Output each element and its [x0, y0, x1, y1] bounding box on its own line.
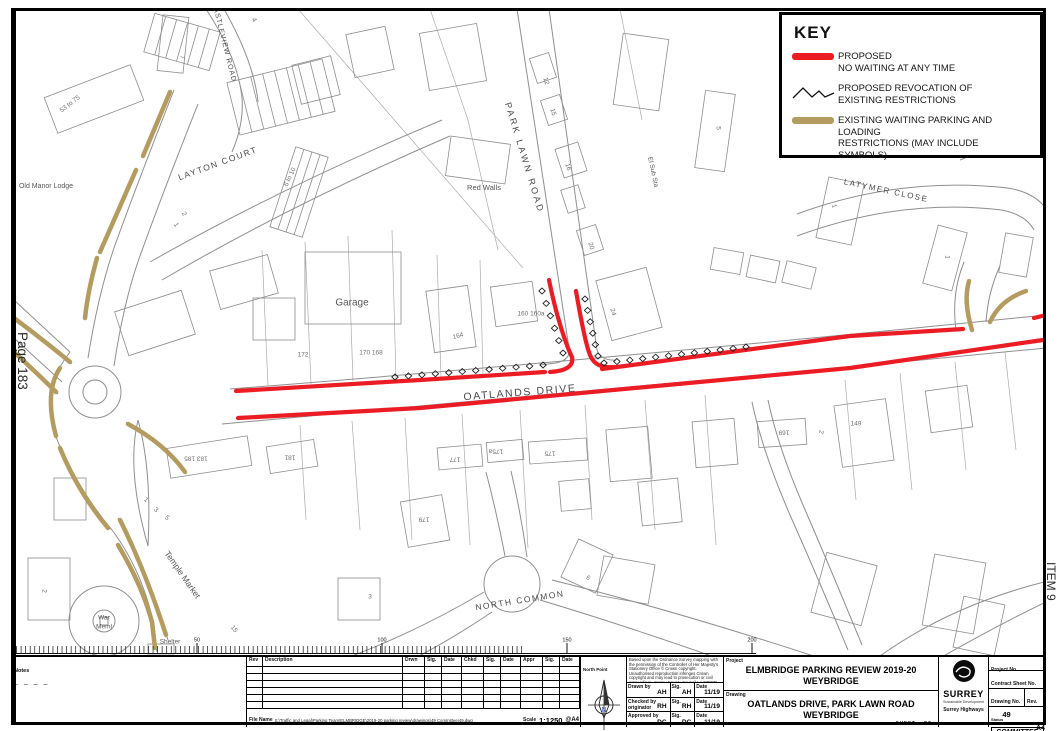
map-place-label: Temple Market [163, 549, 204, 601]
revision-cell [403, 667, 425, 674]
revision-cell [403, 695, 425, 702]
house-number: 175a [488, 447, 503, 454]
terrace-row [227, 59, 335, 135]
parcel-line [845, 380, 856, 500]
parcel-line [955, 362, 966, 470]
contract-sheet-cell: Contract Sheet No. [989, 671, 1046, 689]
revision-cell [425, 674, 442, 681]
revision-cell [247, 695, 263, 702]
revision-cell [543, 695, 560, 702]
revision-header-cell: Rev [247, 657, 263, 667]
notes-content: – – – – [14, 681, 243, 688]
scale-bar-label: 0 [12, 638, 15, 644]
house-number: 179 [418, 515, 429, 522]
revision-empty-row [247, 688, 581, 695]
north-point-label: North Point [583, 667, 608, 672]
building-outline [999, 233, 1034, 277]
revocation-zigzag-mark [592, 342, 598, 348]
house-number: 1 [830, 203, 838, 209]
proposed-line-icon [792, 51, 838, 60]
parcel-line [462, 414, 470, 545]
revision-cell [484, 688, 501, 695]
sheet-of-label: SHEETOF [888, 720, 932, 725]
revocation-zigzag-mark [419, 372, 425, 378]
revision-cell [442, 674, 462, 681]
scale-label: Scale [523, 717, 536, 723]
revision-cell [560, 695, 580, 702]
revision-cell [462, 674, 484, 681]
north-point-box: North Point N [580, 657, 626, 727]
house-number: 5 [163, 514, 171, 522]
revision-cell [501, 695, 521, 702]
house-number: 164 [452, 331, 465, 341]
scale-value: 1:1250 [539, 716, 562, 725]
reference-box: Project No. Contract Sheet No. Drawing N… [988, 657, 1046, 727]
notes-label: Notes [14, 668, 29, 674]
project-line2: WEYBRIDGE [724, 676, 938, 687]
revision-header-cell: Date [560, 657, 580, 667]
revocation-zigzag-mark [614, 359, 620, 365]
drawing-line1: OATLANDS DRIVE, PARK LAWN ROAD [724, 699, 938, 710]
house-number: 149 [851, 421, 862, 428]
file-path: S:\Traffic and Legal\Parking Team\ELMBRI… [275, 718, 523, 723]
parcel-line [705, 395, 716, 545]
building-outline [922, 554, 986, 634]
revision-cell [403, 681, 425, 688]
building-outline [210, 255, 279, 310]
building-outline [692, 418, 738, 467]
revocation-zigzag-mark [539, 288, 545, 294]
surrey-logo-box: SURREY Sustainable Development Surrey Hi… [938, 657, 988, 727]
house-number: 3 [368, 594, 372, 601]
revision-cell [462, 702, 484, 709]
key-entry-label: EXISTING RESTRICTIONS [838, 95, 972, 107]
building-outline [490, 281, 537, 326]
revision-empty-row [247, 681, 581, 688]
revision-header-cell: Drwn [403, 657, 425, 667]
approved-by-row: Approved by DC Sig. DC Date 11/19 [627, 712, 723, 727]
parcel-line [405, 418, 412, 540]
revocation-zigzag-mark [582, 296, 588, 302]
scale-bar-label: 150 [562, 638, 571, 644]
revocation-zigzag-mark [405, 373, 411, 379]
revision-cell [521, 688, 543, 695]
house-number: 2 [180, 211, 188, 218]
building-outline [346, 26, 394, 77]
house-number: 5 [714, 126, 721, 130]
project-line1: ELMBRIDGE PARKING REVIEW 2019-20 [724, 665, 938, 676]
parcel-line [645, 400, 655, 530]
revision-cell [403, 674, 425, 681]
revision-cell [403, 688, 425, 695]
building-outline [28, 558, 70, 620]
revision-cell [560, 667, 580, 674]
revision-header-cell: Appr [521, 657, 543, 667]
key-entry-existing: EXISTING WAITING PARKING AND LOADING RES… [792, 115, 1030, 161]
revision-cell [521, 681, 543, 688]
revision-cell [247, 667, 263, 674]
key-entry-label: EXISTING WAITING PARKING AND LOADING [838, 115, 1030, 138]
revision-cell [521, 667, 543, 674]
building-outline [782, 261, 816, 290]
revision-header-cell: Date [442, 657, 462, 667]
map-place-label: Shelter [160, 639, 181, 646]
house-number: 160 160a [517, 311, 544, 318]
building-outline [528, 438, 587, 464]
revision-cell [543, 702, 560, 709]
scale-bar: 050100150200 [12, 638, 757, 654]
revision-header-cell: Sig. [484, 657, 501, 667]
key-entry-label: RESTRICTIONS (MAY INCLUDE SYMBOLS) [838, 138, 1030, 161]
building-outline [613, 33, 669, 111]
building-outline [834, 399, 894, 468]
map-place-label: Meml [96, 624, 112, 631]
building-outline [638, 478, 682, 526]
revision-cell [442, 681, 462, 688]
revision-cell [425, 688, 442, 695]
building-outline [606, 426, 652, 481]
parcel-line [262, 250, 268, 386]
parcel-line [298, 9, 523, 268]
revision-cell [484, 674, 501, 681]
revision-cell [462, 688, 484, 695]
map-place-label: Old Manor Lodge [19, 183, 73, 190]
house-number: 169 [778, 428, 789, 435]
revision-cell [425, 667, 442, 674]
map-place-label: El Sub Sta [646, 156, 659, 188]
zigzag-line-icon [792, 83, 838, 106]
revision-cell [247, 702, 263, 709]
parcel-line [900, 373, 912, 490]
parcel-line [480, 260, 483, 375]
revision-cell [247, 674, 263, 681]
map-street-label: LAYTON COURT [177, 144, 259, 182]
revocation-zigzag-mark [584, 307, 590, 313]
house-number: 183 185 [184, 454, 208, 461]
revision-cell [442, 688, 462, 695]
project-title: Project ELMBRIDGE PARKING REVIEW 2019-20… [724, 657, 938, 691]
parcel-line [300, 425, 306, 520]
revision-cell [543, 688, 560, 695]
revision-cell [247, 688, 263, 695]
revocation-zigzag-mark [392, 374, 398, 380]
house-number: 3 [152, 506, 160, 514]
building-outline [695, 90, 736, 171]
building-outline [338, 578, 380, 620]
revision-table: RevDescriptionDrwnSig.DateChkdSig.DateAp… [246, 657, 580, 727]
building-outline [559, 479, 592, 512]
drawing-title: Drawing OATLANDS DRIVE, PARK LAWN ROAD W… [724, 691, 938, 727]
revision-cell [484, 667, 501, 674]
revision-cell [560, 674, 580, 681]
building-outline [597, 556, 655, 604]
building-outline [561, 185, 586, 213]
revocation-zigzag-mark [556, 338, 562, 344]
revision-cell [501, 681, 521, 688]
revision-header-row: RevDescriptionDrwnSig.DateChkdSig.DateAp… [247, 657, 581, 667]
key-entry-label: PROPOSED REVOCATION OF [838, 83, 972, 95]
revision-cell [543, 681, 560, 688]
parcel-line [520, 410, 528, 548]
key-legend: KEY PROPOSED NO WAITING AT ANY TIME PROP… [779, 12, 1043, 158]
project-box: Project ELMBRIDGE PARKING REVIEW 2019-20… [723, 657, 938, 727]
scale-bar-label: 200 [747, 638, 756, 644]
revision-header-cell: Description [263, 657, 403, 667]
revision-cell [462, 681, 484, 688]
building-outline [710, 248, 743, 275]
key-entry-revocation: PROPOSED REVOCATION OF EXISTING RESTRICT… [792, 83, 1030, 106]
building-outline [925, 385, 972, 432]
house-number: 12 [541, 77, 550, 86]
house-number: 15 [548, 108, 557, 117]
surrey-logo-text: SURREY [939, 689, 988, 699]
revocation-zigzag-mark [547, 313, 553, 319]
house-number: 170 168 [359, 350, 383, 357]
house-number: 24 [608, 308, 617, 317]
revision-cell [521, 695, 543, 702]
map-street-label: NORTH COMMON [475, 588, 566, 612]
revocation-zigzag-mark [543, 300, 549, 306]
revision-cell [425, 681, 442, 688]
revision-cell [263, 688, 403, 695]
surrey-logo-icon [951, 659, 977, 683]
building-outline [292, 56, 340, 104]
revision-header-cell: Date [501, 657, 521, 667]
revision-cell [442, 695, 462, 702]
building-outline [253, 298, 295, 340]
page-number-label: Page 183 [15, 332, 30, 390]
building-outline [811, 552, 877, 625]
revision-cell [263, 667, 403, 674]
revision-cell [247, 681, 263, 688]
revocation-zigzag-mark [640, 356, 646, 362]
parcel-line [1005, 352, 1016, 450]
house-number: 20 [586, 242, 595, 251]
os-copyright-text: Based upon the Ordnance Survey mapping w… [627, 657, 723, 683]
building-outline [419, 23, 486, 90]
parcel-line [437, 255, 441, 377]
key-title: KEY [794, 23, 1030, 43]
title-block: Notes – – – – RevDescriptionDrwnSig.Date… [11, 655, 1046, 725]
building-outline [746, 255, 780, 283]
revision-cell [462, 695, 484, 702]
revision-header-cell: Chkd [462, 657, 484, 667]
item-number-label: ITEM 9 [1044, 562, 1058, 601]
notes-box: Notes – – – – [11, 657, 246, 727]
revision-cell [560, 681, 580, 688]
house-number: 181 [284, 453, 295, 460]
building-outline [555, 142, 587, 178]
building-outline [157, 15, 189, 73]
terrace-row [270, 147, 328, 237]
paper-at-size: @A4 [565, 717, 579, 723]
house-number: 7 [178, 55, 185, 59]
revision-cell [521, 702, 543, 709]
building-outline [54, 478, 86, 520]
revocation-zigzag-mark [551, 325, 557, 331]
revision-empty-row [247, 695, 581, 702]
revision-cell [425, 695, 442, 702]
revision-cell [462, 667, 484, 674]
file-name-label: File Name [249, 717, 273, 723]
revision-cell [263, 681, 403, 688]
house-number: 15 [229, 624, 239, 634]
house-number: 2 [40, 589, 47, 593]
house-number: 1 [943, 255, 950, 259]
revision-cell [425, 702, 442, 709]
revision-cell [501, 688, 521, 695]
project-label: Project [726, 658, 743, 664]
revocation-zigzag-mark [652, 354, 658, 360]
house-number: 6 [585, 574, 592, 582]
building-outline [305, 252, 401, 324]
revision-header-cell: Sig. [543, 657, 560, 667]
revision-empty-row [247, 667, 581, 674]
revision-cell [543, 667, 560, 674]
building-outline [446, 136, 511, 184]
revision-cell [560, 688, 580, 695]
signature-box: Based upon the Ordnance Survey mapping w… [626, 657, 723, 727]
house-number: 53 to 75 [59, 94, 82, 114]
house-number: 16 [563, 163, 572, 172]
revision-cell [442, 702, 462, 709]
map-place-label: Red Walls [467, 183, 501, 192]
key-entry-proposed: PROPOSED NO WAITING AT ANY TIME [792, 51, 1030, 74]
house-number: 1 [172, 222, 180, 229]
logo-subtitle: Sustainable Development [939, 700, 988, 704]
existing-line-icon [792, 115, 838, 124]
map-place-label: War [98, 615, 111, 622]
building-outline [166, 436, 252, 478]
key-entry-label: PROPOSED [838, 51, 955, 63]
parcel-line [352, 421, 360, 530]
house-number: 2 [817, 430, 825, 435]
house-number: 172 [298, 352, 309, 359]
surrey-highways-label: Surrey Highways [939, 707, 988, 713]
terrace-row [144, 13, 220, 70]
revision-cell [263, 695, 403, 702]
revision-cell [484, 695, 501, 702]
parcel-line [620, 9, 642, 120]
house-number: 6 to 10 [283, 166, 298, 187]
revision-empty-row [247, 702, 581, 709]
drawing-no-cell: Drawing No. 49 Rev. [989, 689, 1046, 707]
revision-cell [560, 702, 580, 709]
drawing-sheet: 050100150200 OATLANDS DRIVEPARK LAWN ROA… [0, 0, 1059, 731]
map-street-label: LATYMER CLOSE [843, 177, 929, 204]
revision-header-cell: Sig. [425, 657, 442, 667]
revocation-zigzag-mark [627, 357, 633, 363]
revision-cell [501, 674, 521, 681]
map-street-label: CASTLEVIEW ROAD [210, 1, 237, 83]
project-no-cell: Project No. [989, 657, 1046, 671]
revision-cell [501, 667, 521, 674]
parcel-line [305, 242, 311, 384]
map-place-label: Garage [335, 298, 369, 309]
building-outline [426, 285, 476, 352]
revision-cell [263, 674, 403, 681]
drawn-by-row: Drawn by AH Sig. AH Date 11/19 [627, 683, 723, 698]
revision-cell [484, 702, 501, 709]
building-outline [44, 65, 144, 133]
scale-bar-label: 100 [377, 638, 386, 644]
house-number: 177 [449, 455, 460, 462]
paper-size-label: A4 [1036, 725, 1045, 731]
status-cell: Status COMMITTEE [989, 707, 1046, 726]
checked-by-row: Checked by originator RH Sig. RH Date 11… [627, 698, 723, 713]
house-number: 175 [544, 449, 555, 456]
scale-bar-label: 50 [194, 638, 200, 644]
parcel-line [430, 9, 498, 250]
building-outline [576, 225, 603, 256]
revision-cell [543, 674, 560, 681]
revision-cell [501, 702, 521, 709]
revocation-zigzag-mark [560, 350, 566, 356]
revision-cell [521, 674, 543, 681]
key-entry-label: NO WAITING AT ANY TIME [838, 63, 955, 75]
revision-cell [442, 667, 462, 674]
north-compass-icon: N [584, 676, 624, 731]
revision-cell [263, 702, 403, 709]
revision-empty-row [247, 674, 581, 681]
building-outline [561, 539, 613, 593]
file-name-row: File Name S:\Traffic and Legal\Parking T… [247, 713, 581, 727]
drawing-label: Drawing [726, 692, 746, 698]
house-number: 4 [250, 17, 258, 24]
revision-cell [484, 681, 501, 688]
north-letter: N [601, 707, 606, 714]
building-outline [596, 267, 662, 340]
revision-cell [403, 702, 425, 709]
